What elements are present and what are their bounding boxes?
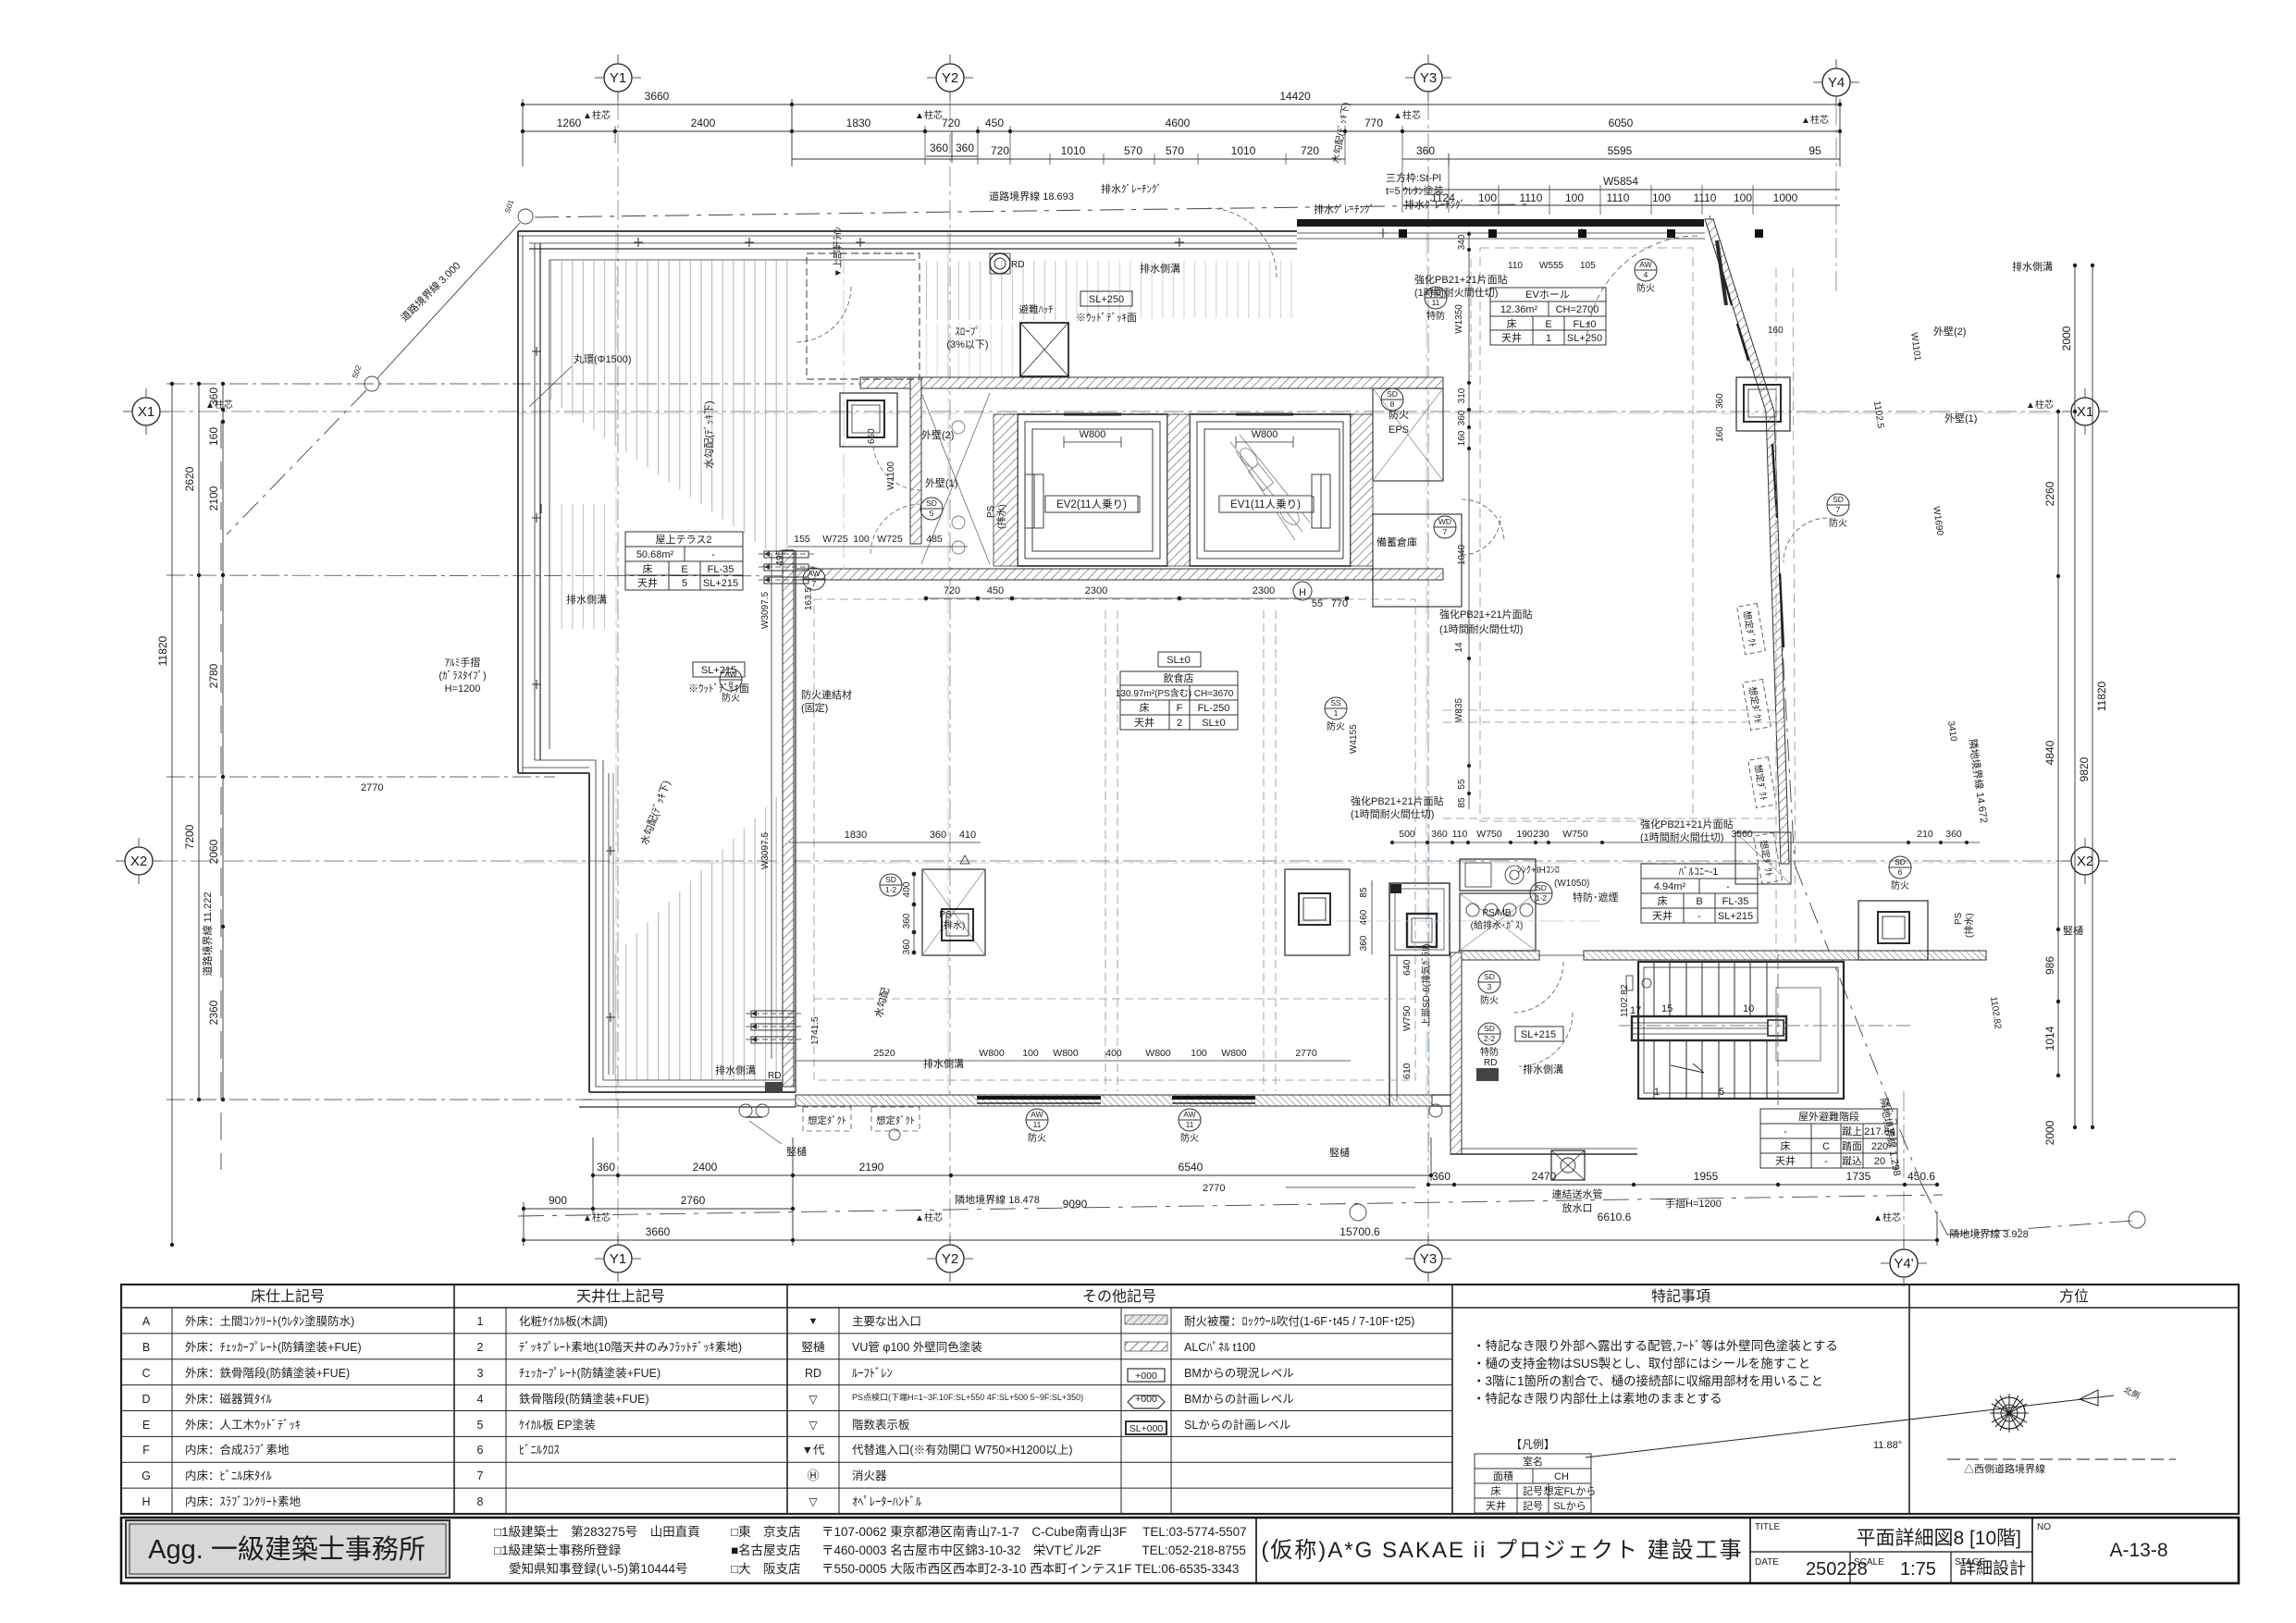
svg-text:水勾配(ﾃﾞｯｷ下): 水勾配(ﾃﾞｯｷ下) [703, 400, 715, 468]
svg-text:EVホール: EVホール [1525, 289, 1570, 301]
svg-text:11: 11 [1033, 1120, 1042, 1129]
svg-text:竪樋: 竪樋 [786, 1145, 807, 1158]
svg-text:踏面: 踏面 [1842, 1139, 1862, 1152]
svg-text:防火: 防火 [1480, 994, 1499, 1006]
svg-text:160: 160 [1457, 430, 1467, 446]
svg-text:14420: 14420 [1279, 90, 1311, 103]
svg-text:W1101: W1101 [1908, 332, 1922, 363]
svg-text:床: 床 [643, 562, 653, 575]
svg-text:3660: 3660 [645, 90, 670, 103]
svg-text:1-2: 1-2 [885, 885, 897, 894]
svg-text:1: 1 [477, 1315, 484, 1328]
svg-text:485: 485 [926, 534, 943, 545]
svg-text:2770: 2770 [1295, 1048, 1317, 1059]
svg-text:Y1: Y1 [610, 70, 626, 86]
svg-text:W4155: W4155 [1349, 724, 1359, 754]
svg-text:Y2: Y2 [942, 1251, 958, 1267]
svg-text:F: F [1177, 703, 1183, 714]
svg-text:1260: 1260 [557, 117, 582, 129]
svg-text:360: 360 [1457, 410, 1467, 425]
svg-text:想定ﾀﾞｸﾄ: 想定ﾀﾞｸﾄ [1758, 839, 1776, 878]
svg-text:NO: NO [2037, 1522, 2051, 1532]
svg-text:1102.82: 1102.82 [1620, 984, 1630, 1017]
svg-text:ｹｲｶﾙ板 EP塗装: ｹｲｶﾙ板 EP塗装 [519, 1418, 596, 1432]
svg-text:■名古屋支店: ■名古屋支店 [731, 1543, 801, 1557]
svg-text:□大 阪支店: □大 阪支店 [731, 1562, 801, 1576]
svg-text:2620: 2620 [183, 466, 196, 491]
svg-text:6: 6 [477, 1444, 484, 1457]
svg-text:610: 610 [1401, 1063, 1413, 1079]
svg-text:1110: 1110 [1607, 191, 1630, 204]
svg-text:ﾋﾞﾆﾙｸﾛｽ: ﾋﾞﾆﾙｸﾛｽ [519, 1444, 560, 1457]
svg-text:-: - [1726, 881, 1730, 892]
svg-text:14: 14 [1454, 642, 1464, 653]
svg-text:天井: 天井 [1775, 1154, 1796, 1167]
svg-text:排水ｸﾞﾚｰﾁﾝｸﾞ: 排水ｸﾞﾚｰﾁﾝｸﾞ [1404, 198, 1465, 211]
svg-text:外床：ﾁｪｯｶｰﾌﾟﾚｰﾄ(防錆塗装+FUE): 外床：ﾁｪｯｶｰﾌﾟﾚｰﾄ(防錆塗装+FUE) [185, 1340, 362, 1354]
svg-text:特防: 特防 [1480, 1046, 1499, 1058]
svg-text:(ｶﾞﾗｽﾀｲﾌﾟ): (ｶﾞﾗｽﾀｲﾌﾟ) [438, 670, 486, 682]
svg-text:3660: 3660 [646, 1225, 671, 1238]
svg-text:CH=3670: CH=3670 [1194, 689, 1234, 699]
svg-text:6540: 6540 [1179, 1161, 1204, 1174]
svg-text:1102.82: 1102.82 [1988, 996, 2003, 1030]
svg-text:1-2: 1-2 [1536, 893, 1548, 903]
svg-text:155: 155 [794, 534, 810, 545]
svg-text:F: F [142, 1444, 150, 1457]
svg-text:隣地境界線 3.928: 隣地境界線 3.928 [1949, 1227, 2029, 1240]
svg-text:450.6: 450.6 [1907, 1170, 1935, 1183]
svg-text:想定FLから: 想定FLから [1544, 1484, 1597, 1497]
svg-text:t=5 ｳﾚﾀﾝ塗装: t=5 ｳﾚﾀﾝ塗装 [1386, 184, 1444, 197]
svg-text:防火連結材: 防火連結材 [801, 688, 852, 701]
svg-text:蹴上: 蹴上 [1842, 1125, 1862, 1137]
svg-text:SCALE: SCALE [1854, 1557, 1884, 1568]
svg-text:160: 160 [1768, 326, 1784, 336]
svg-text:SL±0: SL±0 [1167, 655, 1191, 666]
svg-text:1735: 1735 [1846, 1170, 1871, 1183]
svg-text:外壁(1): 外壁(1) [925, 476, 957, 489]
svg-text:EPS: EPS [1389, 424, 1409, 436]
svg-text:W750: W750 [1401, 1005, 1413, 1031]
svg-text:水勾配(ﾃﾞｯｷ下): 水勾配(ﾃﾞｯｷ下) [1329, 102, 1352, 165]
svg-text:(排水): (排水) [1963, 913, 1975, 938]
svg-text:450: 450 [985, 117, 1004, 129]
svg-text:360: 360 [1431, 829, 1448, 840]
svg-text:217.64: 217.64 [1864, 1126, 1895, 1137]
svg-text:1: 1 [1546, 333, 1551, 344]
svg-text:Y3: Y3 [1420, 1251, 1437, 1267]
svg-text:想定ﾀﾞｸﾄ: 想定ﾀﾞｸﾄ [1741, 609, 1759, 648]
svg-text:AW: AW [808, 569, 820, 578]
svg-text:室名: 室名 [1523, 1455, 1543, 1468]
svg-text:110: 110 [1452, 829, 1468, 840]
svg-text:1: 1 [1654, 1087, 1660, 1098]
svg-text:H: H [142, 1495, 150, 1508]
svg-text:100: 100 [1191, 1048, 1207, 1059]
svg-text:11820: 11820 [2095, 681, 2108, 711]
svg-text:C: C [142, 1367, 150, 1380]
svg-text:WD: WD [1438, 517, 1451, 526]
svg-text:ALCﾊﾟﾈﾙ t100: ALCﾊﾟﾈﾙ t100 [1184, 1341, 1255, 1354]
svg-text:PS: PS [986, 505, 996, 518]
svg-text:特記事項: 特記事項 [1651, 1288, 1710, 1305]
svg-text:▽: ▽ [809, 1419, 818, 1432]
svg-text:天井仕上記号: 天井仕上記号 [576, 1288, 665, 1305]
svg-text:・特記なき限り内部仕上は素地のままとする: ・特記なき限り内部仕上は素地のままとする [1473, 1391, 1722, 1406]
svg-text:2000: 2000 [2060, 326, 2073, 350]
svg-text:400: 400 [902, 881, 912, 897]
svg-text:E: E [142, 1419, 150, 1432]
svg-text:AW: AW [1639, 260, 1651, 269]
svg-text:階数表示板: 階数表示板 [852, 1418, 910, 1432]
svg-text:7: 7 [1836, 505, 1841, 514]
svg-text:6050: 6050 [1609, 117, 1634, 129]
svg-text:平面詳細図8 [10階]: 平面詳細図8 [10階] [1856, 1528, 2021, 1549]
svg-text:天井: 天井 [1134, 716, 1154, 729]
svg-text:10: 10 [1743, 1003, 1754, 1014]
svg-text:床: 床 [1658, 894, 1668, 907]
svg-text:S02: S02 [351, 363, 364, 379]
svg-text:排水ｸﾞﾚｰﾁﾝｸﾞ: 排水ｸﾞﾚｰﾁﾝｸﾞ [1314, 203, 1375, 215]
svg-text:EV2(11人乗り): EV2(11人乗り) [1056, 498, 1127, 510]
svg-text:詳細設計: 詳細設計 [1959, 1559, 2026, 1578]
svg-text:ｼﾝｸ+IHｺﾝﾛ: ｼﾝｸ+IHｺﾝﾛ [1517, 865, 1560, 876]
svg-text:外床：人工木ｳｯﾄﾞﾃﾞｯｷ: 外床：人工木ｳｯﾄﾞﾃﾞｯｷ [185, 1419, 301, 1432]
svg-text:竪樋: 竪樋 [1329, 1146, 1350, 1159]
svg-text:SL+000: SL+000 [1129, 1423, 1164, 1434]
svg-text:W800: W800 [1252, 429, 1278, 440]
svg-text:W800: W800 [1145, 1048, 1171, 1059]
svg-text:排水ｸﾞﾚｰﾁﾝｸﾞ: 排水ｸﾞﾚｰﾁﾝｸﾞ [1101, 182, 1162, 195]
svg-text:1:75: 1:75 [1900, 1559, 1936, 1580]
svg-text:W1350: W1350 [1454, 304, 1464, 334]
svg-text:・3階に1箇所の割合で、樋の接続部に収縮用部材を用いること: ・3階に1箇所の割合で、樋の接続部に収縮用部材を用いること [1473, 1373, 1823, 1388]
svg-text:1014: 1014 [2043, 1026, 2056, 1051]
svg-text:900: 900 [549, 1194, 567, 1207]
svg-text:4840: 4840 [2043, 740, 2056, 765]
svg-text:Agg. 一級建築士事務所: Agg. 一級建築士事務所 [148, 1534, 426, 1565]
svg-text:天井: 天井 [1501, 331, 1522, 344]
svg-text:排水側溝: 排水側溝 [1140, 262, 1180, 275]
svg-text:EV1(11人乗り): EV1(11人乗り) [1230, 498, 1301, 510]
svg-text:SL+215: SL+215 [1521, 1029, 1556, 1040]
svg-text:5: 5 [1719, 1087, 1724, 1098]
svg-text:▽: ▽ [809, 1495, 818, 1508]
svg-text:1110: 1110 [1520, 191, 1543, 204]
svg-text:FL-250: FL-250 [1198, 703, 1230, 714]
svg-text:2300: 2300 [1085, 585, 1107, 596]
svg-text:360: 360 [1432, 1170, 1450, 1183]
svg-text:2: 2 [1177, 718, 1182, 729]
svg-text:※ｳｯﾄﾞﾃﾞｯｷ面: ※ｳｯﾄﾞﾃﾞｯｷ面 [688, 682, 749, 695]
svg-text:▲柱芯: ▲柱芯 [583, 1211, 611, 1223]
svg-text:想定ﾀﾞｸﾄ: 想定ﾀﾞｸﾄ [808, 1114, 846, 1126]
svg-text:210: 210 [1917, 829, 1933, 840]
svg-text:特防: 特防 [1426, 310, 1445, 322]
svg-text:ｵﾍﾟﾚｰﾀｰﾊﾝﾄﾞﾙ: ｵﾍﾟﾚｰﾀｰﾊﾝﾄﾞﾙ [852, 1495, 922, 1508]
svg-text:360: 360 [1359, 935, 1369, 951]
svg-text:1102.5: 1102.5 [1871, 400, 1885, 430]
svg-text:防火: 防火 [1829, 517, 1847, 529]
svg-text:640: 640 [1401, 959, 1413, 976]
svg-text:SD: SD [1484, 1024, 1495, 1033]
svg-text:防火: 防火 [1891, 879, 1909, 891]
svg-text:W1100: W1100 [886, 461, 896, 490]
svg-text:□1級建築士 第283275号 山田直貢: □1級建築士 第283275号 山田直貢 [494, 1524, 700, 1539]
svg-text:AW: AW [1183, 1110, 1195, 1119]
svg-text:4: 4 [1644, 270, 1648, 279]
svg-text:防火: 防火 [1028, 1132, 1046, 1144]
svg-text:代替進入口(※有効開口 W750×H1200以上): 代替進入口(※有効開口 W750×H1200以上) [852, 1443, 1073, 1457]
svg-text:1010: 1010 [1231, 144, 1256, 157]
svg-text:W800: W800 [1080, 429, 1106, 440]
svg-text:G: G [142, 1469, 151, 1482]
svg-text:▼上部軒ﾗｲﾝ: ▼上部軒ﾗｲﾝ [832, 227, 844, 277]
svg-text:記号: 記号 [1523, 1484, 1543, 1497]
svg-text:5: 5 [477, 1419, 484, 1432]
svg-text:8: 8 [729, 680, 734, 689]
svg-text:ﾙｰﾌﾄﾞﾚﾝ: ﾙｰﾌﾄﾞﾚﾝ [852, 1367, 893, 1380]
svg-text:6610.6: 6610.6 [1598, 1211, 1632, 1223]
svg-text:105: 105 [1580, 261, 1596, 271]
svg-text:W800: W800 [1053, 1048, 1079, 1059]
svg-text:□東 京支店: □東 京支店 [731, 1525, 801, 1539]
svg-text:天井: 天井 [1486, 1499, 1506, 1512]
svg-text:W5854: W5854 [1603, 175, 1638, 188]
svg-text:▲柱芯: ▲柱芯 [915, 1211, 943, 1223]
svg-text:400: 400 [1105, 1048, 1122, 1059]
svg-text:手摺H=1200: 手摺H=1200 [1665, 1197, 1722, 1210]
svg-text:3: 3 [477, 1367, 484, 1380]
svg-text:(排水): (排水) [941, 919, 966, 931]
svg-text:570: 570 [1166, 144, 1184, 157]
svg-text:11: 11 [1432, 298, 1440, 307]
svg-text:720: 720 [991, 144, 1009, 157]
svg-text:4.94m²: 4.94m² [1654, 881, 1686, 892]
svg-text:防火: 防火 [722, 692, 740, 704]
svg-text:50.68m²: 50.68m² [636, 549, 674, 560]
svg-text:BMからの現況レベル: BMからの現況レベル [1184, 1366, 1294, 1380]
svg-text:PS点検口(下端H=1~3F.10F:SL+550 4F:S: PS点検口(下端H=1~3F.10F:SL+550 4F:SL+500 5~9F… [852, 1392, 1083, 1402]
svg-text:1010: 1010 [1061, 144, 1086, 157]
svg-text:SL+250: SL+250 [1089, 294, 1124, 305]
svg-text:W555: W555 [1539, 261, 1564, 271]
svg-text:H=1200: H=1200 [445, 683, 481, 695]
svg-text:720: 720 [942, 117, 960, 129]
svg-text:SD: SD [885, 875, 896, 884]
svg-text:X2: X2 [130, 854, 147, 869]
svg-text:水勾配(ﾃﾞｯｷ下): 水勾配(ﾃﾞｯｷ下) [638, 779, 673, 846]
svg-text:三方枠:St-Pl: 三方枠:St-Pl [1386, 171, 1441, 184]
svg-text:100: 100 [1565, 191, 1584, 204]
svg-text:5: 5 [682, 578, 687, 589]
svg-text:竪樋: 竪樋 [2063, 924, 2083, 937]
svg-text:720: 720 [944, 585, 960, 596]
svg-text:(排水): (排水) [995, 504, 1007, 529]
svg-text:2360: 2360 [207, 1000, 220, 1025]
svg-text:SL+215: SL+215 [1718, 911, 1753, 922]
svg-text:450: 450 [987, 585, 1004, 596]
svg-text:W835: W835 [1454, 698, 1464, 723]
svg-text:3410: 3410 [1945, 720, 1958, 743]
svg-text:丸環(Φ1500): 丸環(Φ1500) [574, 353, 632, 365]
svg-text:D: D [142, 1393, 150, 1406]
svg-text:想定ﾀﾞｸﾄ: 想定ﾀﾞｸﾄ [876, 1114, 915, 1126]
svg-text:H: H [1299, 587, 1306, 598]
svg-text:BMからの計画レベル: BMからの計画レベル [1184, 1392, 1294, 1406]
svg-text:▼: ▼ [809, 1316, 819, 1327]
svg-text:PS/MB: PS/MB [1482, 908, 1511, 918]
svg-text:化粧ｹｲｶﾙ板(木調): 化粧ｹｲｶﾙ板(木調) [519, 1315, 608, 1328]
svg-text:360: 360 [1416, 144, 1435, 157]
svg-text:160: 160 [1715, 426, 1725, 442]
svg-text:360: 360 [930, 830, 946, 841]
svg-text:3: 3 [1487, 982, 1492, 991]
svg-text:放水口: 放水口 [1562, 1201, 1593, 1214]
svg-text:100: 100 [1652, 191, 1671, 204]
svg-text:RD: RD [805, 1367, 821, 1380]
svg-text:95: 95 [1808, 144, 1821, 157]
svg-text:外床：鉄骨階段(防錆塗装+FUE): 外床：鉄骨階段(防錆塗装+FUE) [185, 1366, 350, 1380]
svg-text:230: 230 [1533, 829, 1549, 840]
svg-text:FL±0: FL±0 [1574, 319, 1597, 330]
svg-text:360: 360 [930, 141, 948, 154]
svg-text:2760: 2760 [681, 1194, 706, 1207]
svg-text:強化PB21+21片面貼: 強化PB21+21片面貼 [1640, 818, 1734, 830]
svg-text:その他記号: その他記号 [1082, 1288, 1156, 1305]
svg-text:9820: 9820 [2078, 756, 2091, 781]
svg-text:2300: 2300 [1253, 585, 1275, 596]
svg-text:W800: W800 [979, 1048, 1005, 1059]
svg-text:排水側溝: 排水側溝 [2012, 260, 2053, 273]
svg-text:B: B [1696, 896, 1702, 907]
svg-text:770: 770 [1364, 117, 1383, 129]
svg-text:360: 360 [1715, 393, 1725, 409]
svg-text:7: 7 [812, 579, 817, 588]
svg-text:2400: 2400 [691, 117, 716, 129]
svg-text:AW: AW [724, 670, 736, 679]
svg-text:竪樋: 竪樋 [801, 1340, 825, 1354]
svg-text:5595: 5595 [1608, 144, 1633, 157]
svg-text:備蓄倉庫: 備蓄倉庫 [1376, 535, 1417, 548]
svg-text:15: 15 [1661, 1003, 1673, 1014]
svg-text:W3097.5: W3097.5 [760, 592, 771, 629]
svg-text:床: 床 [1781, 1139, 1791, 1152]
svg-text:隣地境界線 14.672: 隣地境界線 14.672 [1967, 738, 1992, 824]
svg-text:SD: SD [1387, 389, 1398, 399]
svg-text:S01: S01 [503, 198, 516, 214]
svg-text:排水側溝: 排水側溝 [923, 1057, 964, 1070]
svg-text:5: 5 [930, 509, 934, 518]
svg-text:▲柱芯: ▲柱芯 [915, 109, 943, 121]
svg-text:1: 1 [1334, 708, 1339, 718]
svg-text:160: 160 [207, 427, 220, 446]
svg-text:(3%以下): (3%以下) [946, 339, 988, 350]
svg-text:道路境界線 18.693: 道路境界線 18.693 [989, 190, 1074, 203]
svg-text:190: 190 [1516, 829, 1533, 840]
svg-text:+000: +000 [1135, 1394, 1157, 1405]
svg-text:強化PB21+21片面貼: 強化PB21+21片面貼 [1414, 273, 1508, 286]
svg-text:W750: W750 [1476, 829, 1502, 840]
svg-text:17: 17 [1630, 1005, 1641, 1016]
svg-text:▼代: ▼代 [802, 1444, 825, 1457]
svg-text:▲柱芯: ▲柱芯 [2026, 399, 2054, 411]
svg-text:55: 55 [1457, 779, 1467, 790]
svg-text:上部SD-6(排気ｶﾞﾗﾘ): 上部SD-6(排気ｶﾞﾗﾘ) [1420, 944, 1432, 1027]
svg-text:ｱﾙﾐ手摺: ｱﾙﾐ手摺 [445, 656, 481, 669]
svg-text:内床：合成ｽﾗﾌﾞ素地: 内床：合成ｽﾗﾌﾞ素地 [185, 1443, 290, 1457]
svg-text:FL-35: FL-35 [708, 564, 734, 575]
svg-text:TITLE: TITLE [1755, 1522, 1781, 1532]
svg-text:Y4': Y4' [1894, 1256, 1913, 1272]
svg-text:SD: SD [1833, 495, 1844, 504]
svg-text:660: 660 [867, 428, 877, 444]
svg-text:床: 床 [1491, 1484, 1501, 1497]
svg-text:7200: 7200 [183, 824, 196, 849]
svg-text:消火器: 消火器 [852, 1469, 887, 1482]
svg-text:2190: 2190 [859, 1161, 884, 1174]
svg-text:220: 220 [1871, 1141, 1888, 1152]
svg-text:Ⓗ: Ⓗ [807, 1469, 819, 1482]
svg-text:500: 500 [1399, 829, 1415, 840]
svg-text:(1時間耐火間仕切): (1時間耐火間仕切) [1414, 287, 1498, 299]
svg-text:1830: 1830 [845, 830, 867, 841]
svg-text:AW: AW [1031, 1110, 1043, 1119]
svg-text:W1690: W1690 [1931, 506, 1944, 536]
svg-text:方位: 方位 [2059, 1288, 2089, 1305]
svg-text:▲柱芯: ▲柱芯 [583, 109, 611, 121]
svg-text:愛知県知事登録(い-5)第10444号: 愛知県知事登録(い-5)第10444号 [509, 1561, 688, 1576]
svg-text:Y4: Y4 [1828, 75, 1845, 91]
svg-text:連結送水管: 連結送水管 [1552, 1187, 1603, 1200]
svg-text:CH: CH [1554, 1471, 1569, 1482]
svg-text:RD: RD [1484, 1058, 1497, 1068]
svg-text:FL-35: FL-35 [1722, 896, 1749, 907]
svg-text:55: 55 [1312, 598, 1323, 609]
svg-text:防火: 防火 [1180, 1132, 1199, 1144]
svg-text:水勾配: 水勾配 [872, 986, 892, 1018]
svg-text:2100: 2100 [207, 486, 220, 510]
svg-text:2770: 2770 [361, 782, 383, 793]
svg-text:460: 460 [1359, 909, 1369, 925]
svg-text:外床：土間ｺﾝｸﾘｰﾄ(ｳﾚﾀﾝ塗膜防水): 外床：土間ｺﾝｸﾘｰﾄ(ｳﾚﾀﾝ塗膜防水) [185, 1314, 354, 1328]
svg-text:W800: W800 [1221, 1048, 1247, 1059]
svg-text:SS: SS [1330, 698, 1341, 707]
svg-text:面積: 面積 [1493, 1469, 1513, 1482]
svg-text:【凡例】: 【凡例】 [1511, 1438, 1555, 1451]
svg-text:(W1050): (W1050) [1554, 879, 1589, 889]
svg-text:(1時間耐火間仕切): (1時間耐火間仕切) [1439, 623, 1523, 635]
svg-text:避難ﾊｯﾁ: 避難ﾊｯﾁ [1019, 303, 1054, 315]
svg-text:▲柱芯: ▲柱芯 [1873, 1211, 1901, 1223]
svg-text:W750: W750 [1562, 829, 1588, 840]
svg-text:床: 床 [1140, 701, 1150, 714]
svg-text:6: 6 [1898, 867, 1903, 877]
svg-text:360: 360 [597, 1161, 615, 1174]
svg-text:Y3: Y3 [1420, 70, 1437, 86]
svg-text:360: 360 [902, 913, 912, 928]
svg-text:・特記なき限り外部へ露出する配管,ﾌｰﾄﾞ等は外壁同色塗装と: ・特記なき限り外部へ露出する配管,ﾌｰﾄﾞ等は外壁同色塗装とする [1473, 1338, 1838, 1353]
svg-text:天井: 天井 [1652, 909, 1673, 922]
svg-text:□1級建築士事務所登録: □1級建築士事務所登録 [494, 1543, 622, 1557]
svg-text:2000: 2000 [2043, 1120, 2056, 1145]
svg-text:2: 2 [477, 1341, 484, 1354]
svg-text:外壁(2): 外壁(2) [1933, 325, 1966, 338]
svg-text:2060: 2060 [207, 839, 220, 864]
svg-text:特防･遮煙: 特防･遮煙 [1573, 891, 1619, 904]
svg-text:屋上テラス2: 屋上テラス2 [656, 534, 712, 546]
